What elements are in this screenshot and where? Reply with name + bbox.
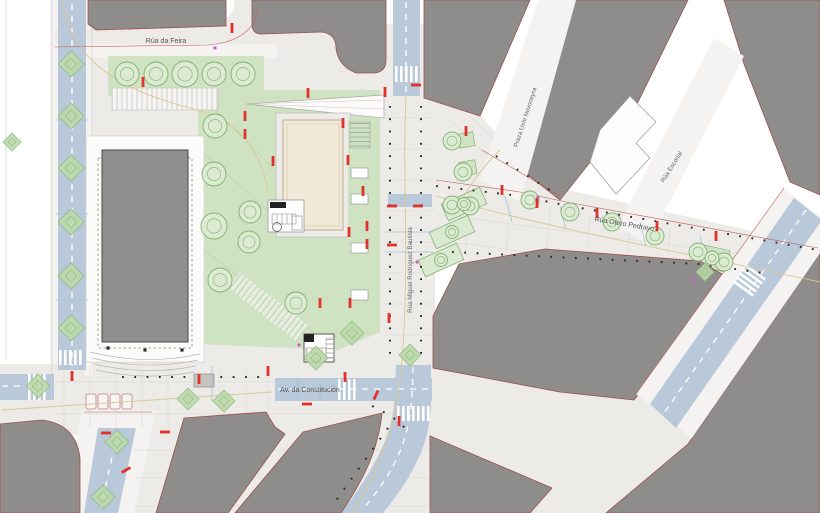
section-mark	[302, 403, 312, 406]
section-mark	[142, 77, 145, 87]
tree	[202, 62, 226, 86]
section-mark	[465, 126, 468, 136]
tree	[285, 292, 307, 314]
tree	[446, 226, 459, 239]
section-mark	[362, 186, 365, 196]
tree	[238, 231, 260, 253]
utility-point	[297, 343, 300, 346]
section-mark	[344, 372, 347, 382]
section-mark	[231, 23, 234, 33]
site-plan-svg: Rúa da Feira Av. da Constitución Rúa Mig…	[0, 0, 820, 513]
section-mark	[398, 416, 401, 426]
site-plan: Rúa da Feira Av. da Constitución Rúa Mig…	[0, 0, 820, 513]
tree	[705, 251, 719, 265]
label-av-constitucion: Av. da Constitución	[280, 387, 340, 394]
tree	[239, 201, 261, 223]
bench	[351, 243, 368, 253]
section-mark	[366, 221, 369, 231]
tree	[115, 62, 139, 86]
tree	[443, 132, 461, 150]
label-rua-miguel: Rúa Miguel Rodríguez Bautista	[407, 227, 414, 313]
utility-point	[691, 279, 694, 282]
tree	[203, 114, 227, 138]
section-mark	[501, 185, 504, 195]
section-mark	[267, 366, 270, 376]
tree	[201, 213, 227, 239]
section-mark	[348, 227, 351, 237]
utility-point	[415, 260, 418, 263]
section-mark	[715, 231, 718, 241]
utility-point	[536, 195, 539, 198]
section-mark	[160, 431, 170, 434]
section-mark	[413, 205, 423, 208]
bench	[351, 194, 368, 204]
section-mark	[384, 87, 387, 97]
bollard	[180, 348, 183, 351]
tree	[172, 61, 198, 87]
tree	[689, 243, 707, 261]
existing-building	[102, 150, 188, 342]
section-mark	[387, 244, 397, 247]
section-mark	[342, 118, 345, 128]
section-mark	[198, 374, 201, 384]
bollard	[106, 346, 109, 349]
tree	[454, 163, 472, 181]
section-mark	[656, 221, 659, 231]
section-mark	[244, 111, 247, 121]
section-mark	[536, 198, 539, 208]
section-mark	[244, 129, 247, 139]
utility-point	[213, 46, 216, 49]
bench	[351, 290, 368, 300]
section-mark	[71, 371, 74, 381]
section-mark	[349, 298, 352, 308]
tree	[144, 62, 168, 86]
tree	[561, 203, 579, 221]
tree	[458, 198, 471, 211]
section-mark	[272, 156, 275, 166]
tree	[231, 62, 255, 86]
section-mark	[307, 88, 310, 98]
bus-shelter	[194, 374, 214, 387]
section-mark	[319, 298, 322, 308]
pavilion	[268, 200, 304, 232]
tree	[202, 162, 226, 186]
bollard	[143, 348, 146, 351]
tree	[208, 268, 232, 292]
section-mark	[388, 313, 391, 323]
section-mark	[347, 155, 350, 165]
section-mark	[411, 84, 421, 87]
section-mark	[101, 432, 111, 435]
section-mark	[366, 239, 369, 249]
tree	[435, 254, 448, 267]
section-mark	[387, 205, 397, 208]
label-rua-da-feira: Rúa da Feira	[146, 38, 187, 45]
bench	[351, 168, 368, 178]
